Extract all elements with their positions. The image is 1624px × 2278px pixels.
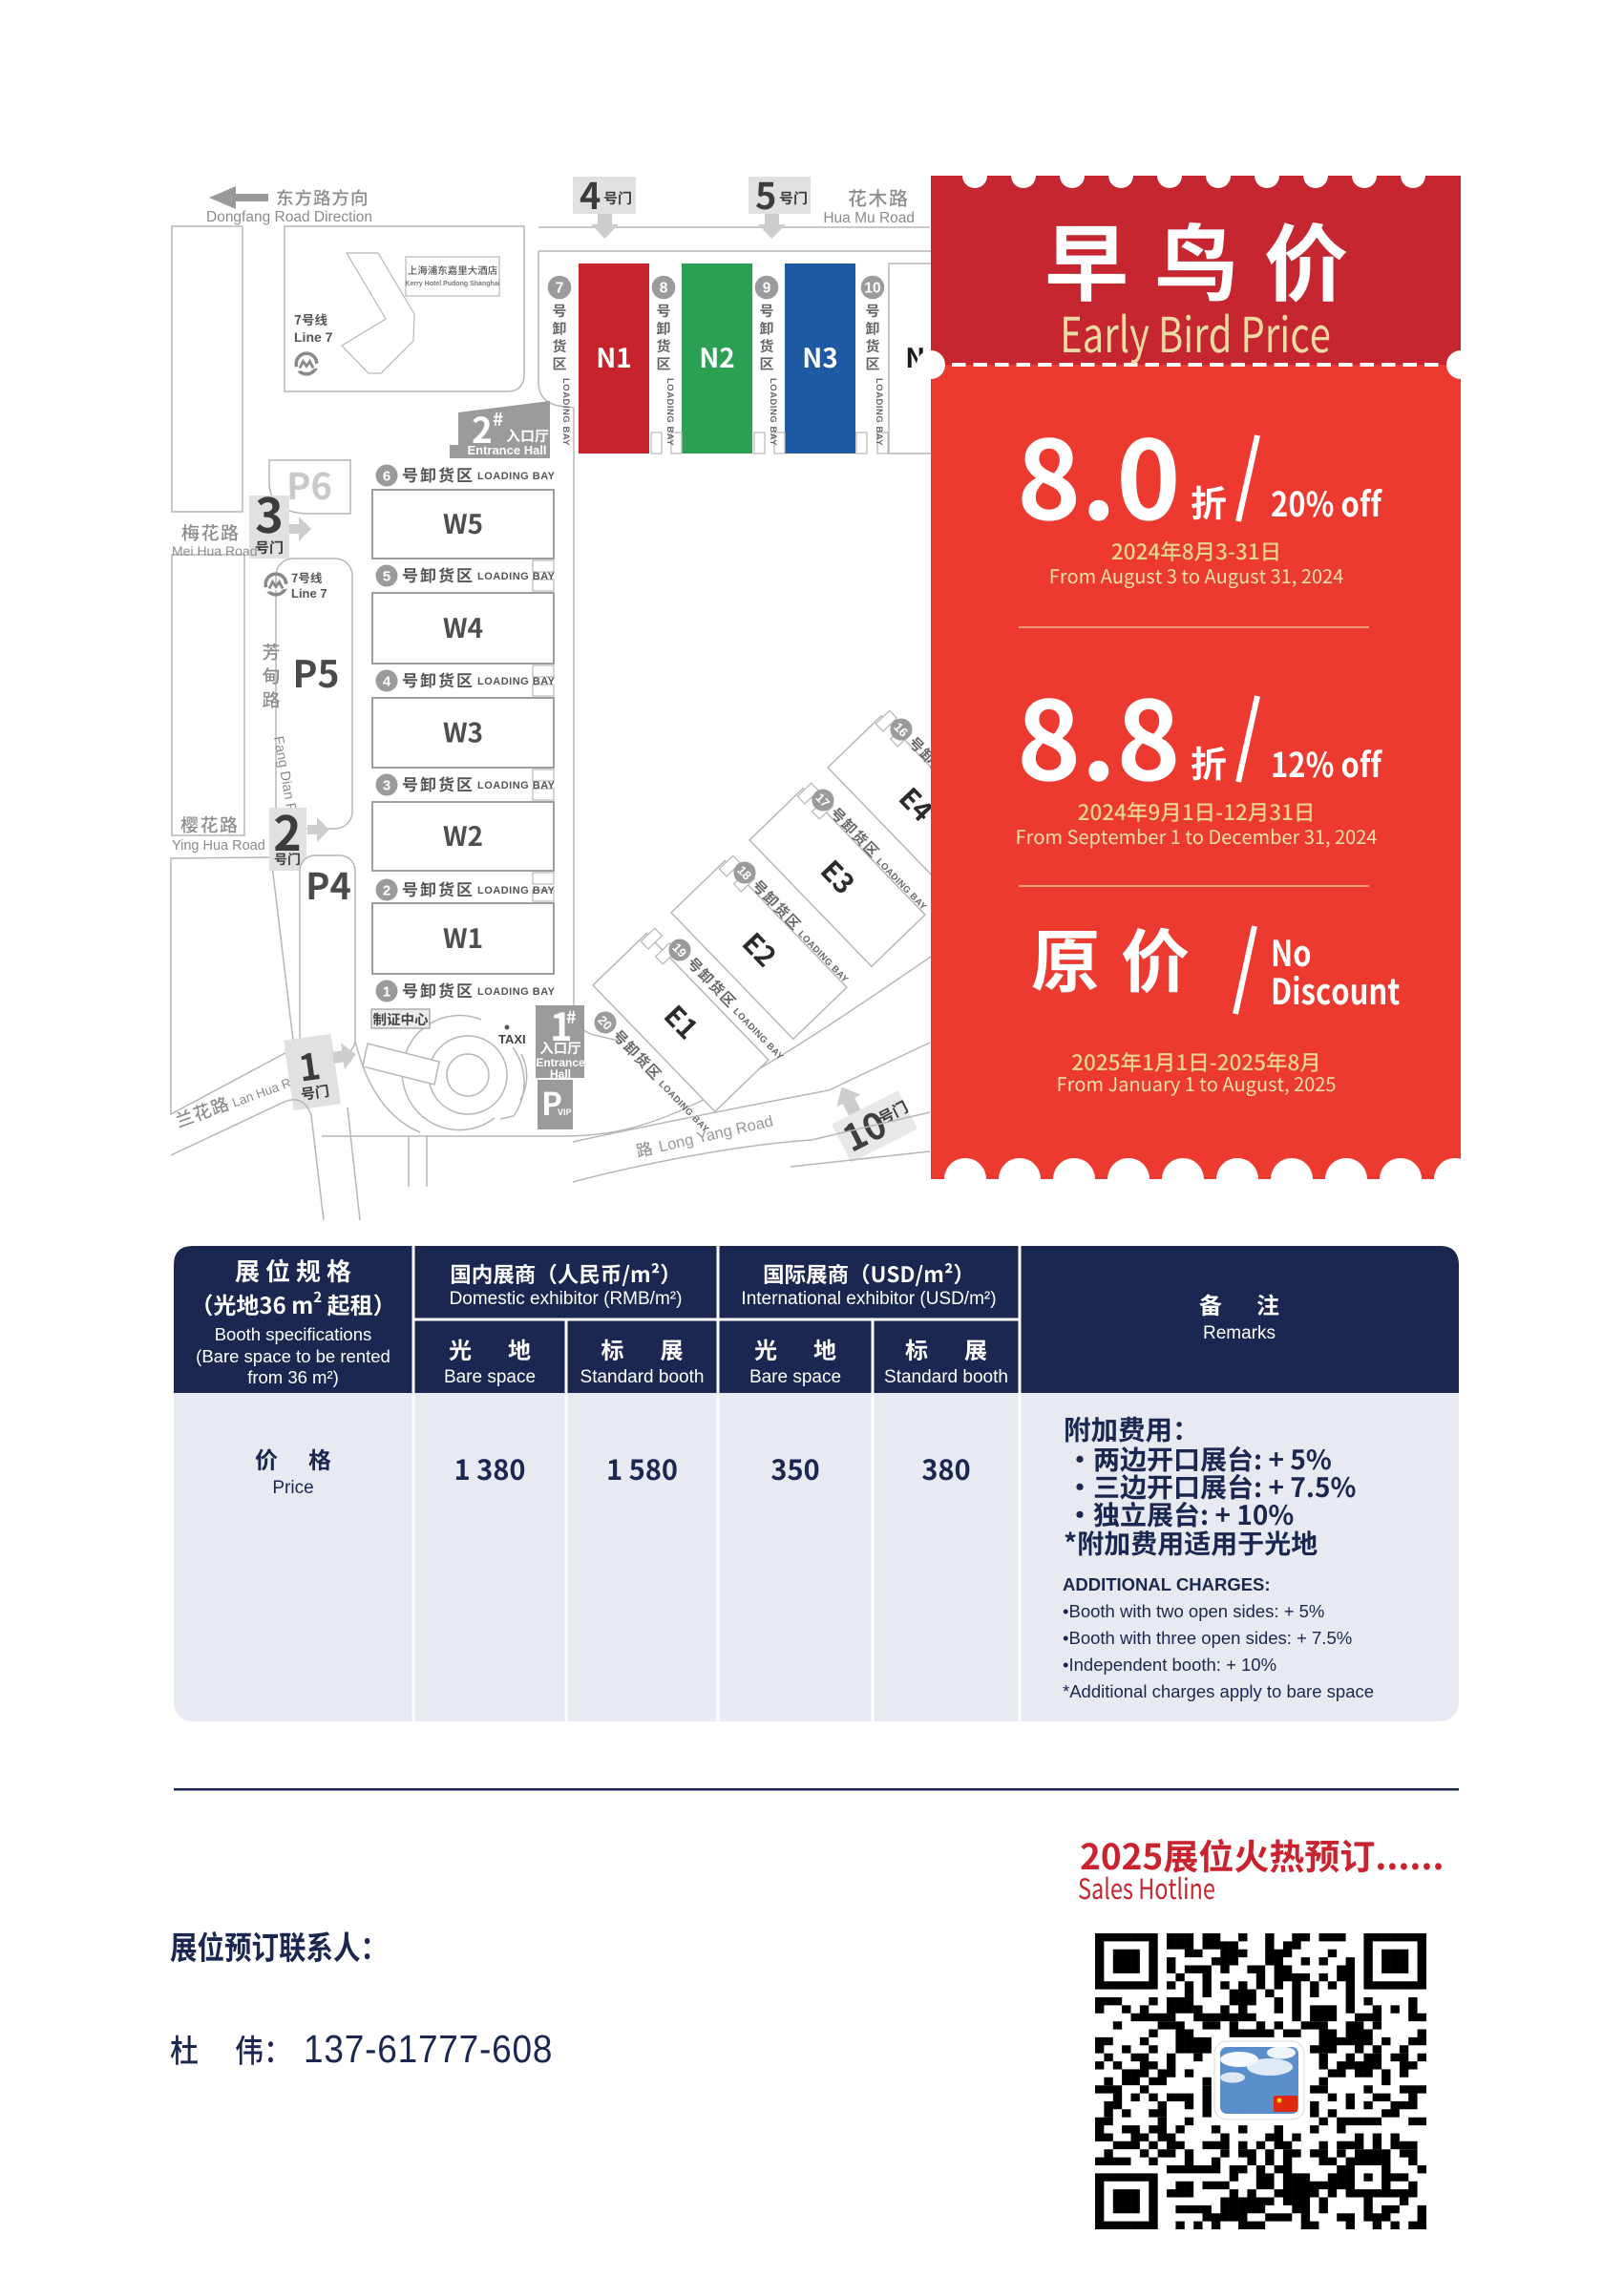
svg-text:from 36 m²): from 36 m²) [247, 1367, 339, 1387]
svg-text:6: 6 [383, 469, 390, 485]
svg-text:LOADING BAY: LOADING BAY [477, 571, 556, 582]
svg-text:(Bare space to be rented: (Bare space to be rented [196, 1346, 390, 1366]
svg-text:9: 9 [763, 281, 771, 297]
svg-text:*Additional charges apply to b: *Additional charges apply to bare space [1063, 1681, 1374, 1701]
svg-text:10: 10 [864, 281, 880, 297]
svg-text:LOADING BAY: LOADING BAY [477, 780, 556, 791]
svg-text:Bare space: Bare space [444, 1367, 536, 1387]
svg-text:Domestic exhibitor (RMB/m²): Domestic exhibitor (RMB/m²) [450, 1289, 683, 1309]
svg-text:•Booth with two open sides: +: •Booth with two open sides: + 5% [1063, 1601, 1324, 1621]
svg-text:LOADING BAY: LOADING BAY [874, 378, 884, 446]
svg-text:LOADING BAY: LOADING BAY [664, 378, 675, 446]
svg-text:Booth specifications: Booth specifications [215, 1324, 372, 1344]
svg-text:Long Yang Road: Long Yang Road [657, 1112, 774, 1155]
svg-text:TAXI: TAXI [498, 1032, 526, 1046]
svg-text:Remarks: Remarks [1203, 1323, 1276, 1343]
svg-text:Line 7: Line 7 [294, 329, 333, 345]
svg-text:2: 2 [383, 883, 390, 899]
svg-text:Standard booth: Standard booth [580, 1367, 705, 1387]
svg-text:8: 8 [660, 281, 668, 297]
svg-text:VIP: VIP [558, 1107, 572, 1117]
svg-text:Kerry Hotel Pudong Shanghai: Kerry Hotel Pudong Shanghai [405, 281, 499, 287]
svg-text:Ying Hua Road: Ying Hua Road [172, 838, 265, 854]
svg-text:LOADING BAY: LOADING BAY [477, 676, 556, 687]
svg-text:Hall: Hall [550, 1067, 571, 1081]
svg-text:Hua Mu Road: Hua Mu Road [823, 210, 915, 226]
svg-text:5: 5 [383, 569, 390, 585]
svg-text:3: 3 [383, 778, 390, 794]
svg-text:Price: Price [272, 1478, 313, 1498]
svg-text:LOADING BAY: LOADING BAY [560, 378, 571, 446]
svg-text:ADDITIONAL CHARGES:: ADDITIONAL CHARGES: [1063, 1574, 1271, 1594]
svg-text:LOADING BAY: LOADING BAY [477, 885, 556, 896]
svg-text:7: 7 [556, 281, 564, 297]
svg-text:Dongfang Road Direction: Dongfang Road Direction [206, 209, 372, 225]
svg-text:Standard booth: Standard booth [884, 1367, 1008, 1387]
svg-text:•Independent booth: + 10%: •Independent booth: + 10% [1063, 1655, 1276, 1675]
svg-text:International exhibitor (USD/m: International exhibitor (USD/m²) [741, 1289, 996, 1309]
svg-text:Line 7: Line 7 [291, 586, 327, 601]
svg-text:Entrance Hall: Entrance Hall [467, 443, 546, 457]
svg-text:Bare space: Bare space [749, 1367, 841, 1387]
svg-text:4: 4 [383, 674, 391, 690]
svg-text:LOADING BAY: LOADING BAY [477, 986, 556, 998]
svg-text:1: 1 [383, 984, 390, 1001]
svg-text:LOADING BAY: LOADING BAY [768, 378, 778, 446]
svg-text:137-61777-608: 137-61777-608 [304, 2028, 553, 2071]
svg-text:•Booth with three open sides:: •Booth with three open sides: + 7.5% [1063, 1628, 1352, 1648]
svg-text:LOADING BAY: LOADING BAY [477, 471, 556, 482]
svg-text:Mei Hua Road: Mei Hua Road [172, 543, 258, 559]
